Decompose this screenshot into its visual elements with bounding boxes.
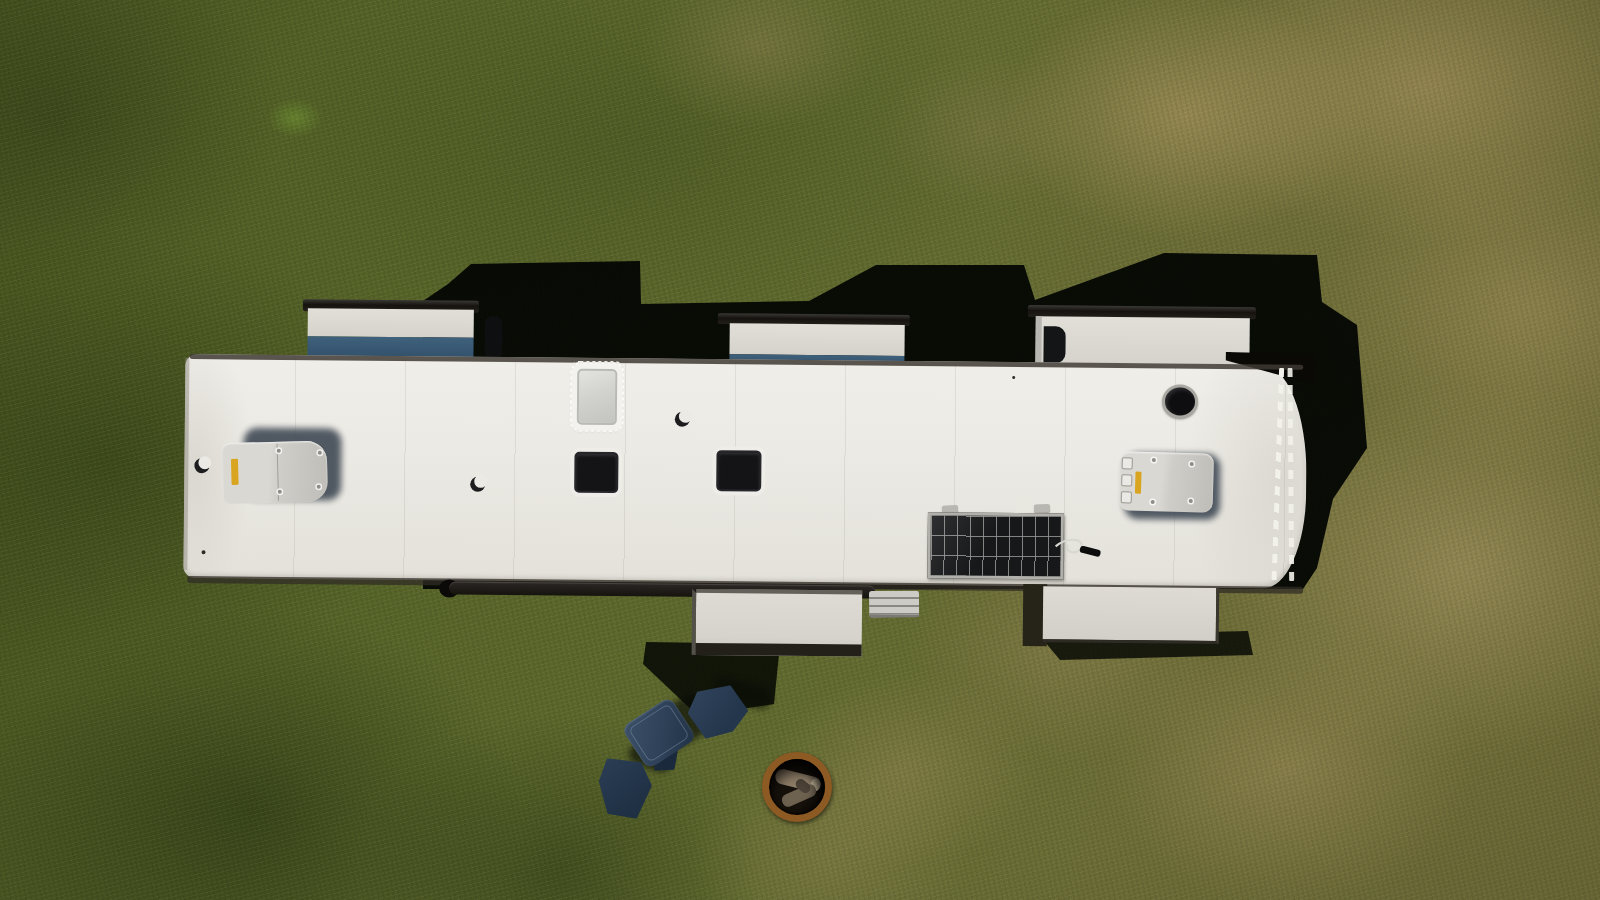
plumbing-cap-2 — [470, 477, 485, 492]
ac-vent-slat — [1121, 491, 1132, 503]
plumbing-cap-3 — [675, 412, 690, 427]
slide-out-front-right-edge — [1035, 316, 1041, 366]
rv-trailer — [182, 296, 1315, 675]
slide-out-rear-middle — [692, 589, 863, 657]
aerial-rv-photo — [0, 0, 1600, 900]
ladder-rail — [1287, 368, 1294, 582]
screw — [1152, 458, 1156, 462]
slide-out-front-left — [308, 308, 474, 338]
solar-mount-bracket — [1034, 504, 1050, 513]
screw — [317, 485, 321, 489]
skylight — [572, 364, 623, 430]
furnace-vent — [869, 591, 919, 618]
roof-vent-square-1 — [574, 452, 618, 493]
roof-vent-square-2 — [716, 450, 761, 491]
screw — [1189, 499, 1193, 503]
screw — [1190, 462, 1194, 466]
fire-pit-rim-highlight — [762, 752, 832, 822]
ac-vent-slat — [1122, 457, 1133, 469]
slide-topper-arm — [484, 316, 502, 360]
roof-vent-round — [1162, 384, 1198, 418]
rear-ladder — [1274, 367, 1302, 581]
solar-cable — [1053, 532, 1113, 565]
slide-out-rear-right — [1043, 586, 1220, 644]
plumbing-cap-1 — [194, 458, 209, 473]
screw — [278, 490, 282, 494]
roof-debris-speck — [202, 550, 206, 554]
solar-panel — [927, 512, 1064, 579]
screw — [318, 451, 322, 455]
screw — [277, 449, 281, 453]
ac-warning-sticker — [231, 459, 239, 485]
ac-vent-slat — [1121, 474, 1132, 486]
slide-out-bottom-trim — [696, 643, 862, 657]
roof-debris-speck — [1012, 376, 1015, 379]
fire-pit-ring — [762, 752, 832, 822]
slide-out-grab-handle — [1043, 326, 1065, 363]
screw — [1151, 500, 1155, 504]
ac-unit-front — [222, 441, 329, 505]
slide-out-front-right — [1035, 316, 1249, 368]
skylight-pane — [577, 369, 618, 425]
ac-warning-sticker — [1135, 472, 1142, 494]
slide-out-front-middle — [729, 323, 904, 356]
ac-unit-rear — [1118, 451, 1214, 513]
